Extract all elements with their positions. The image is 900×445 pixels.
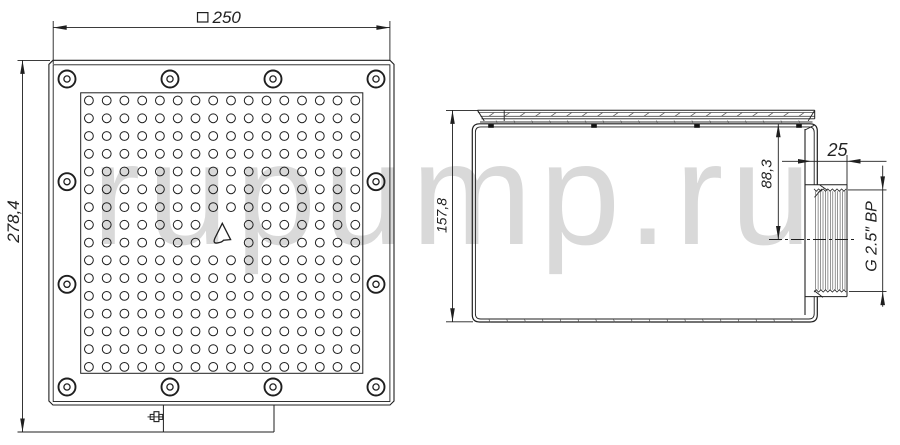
svg-text:278,4: 278,4 xyxy=(4,200,23,244)
svg-text:157,8: 157,8 xyxy=(434,198,450,233)
svg-text:250: 250 xyxy=(212,8,242,27)
svg-text:25: 25 xyxy=(826,140,848,160)
svg-text:G 2.5″ BP: G 2.5″ BP xyxy=(864,201,881,272)
svg-text:88,3: 88,3 xyxy=(759,159,776,189)
